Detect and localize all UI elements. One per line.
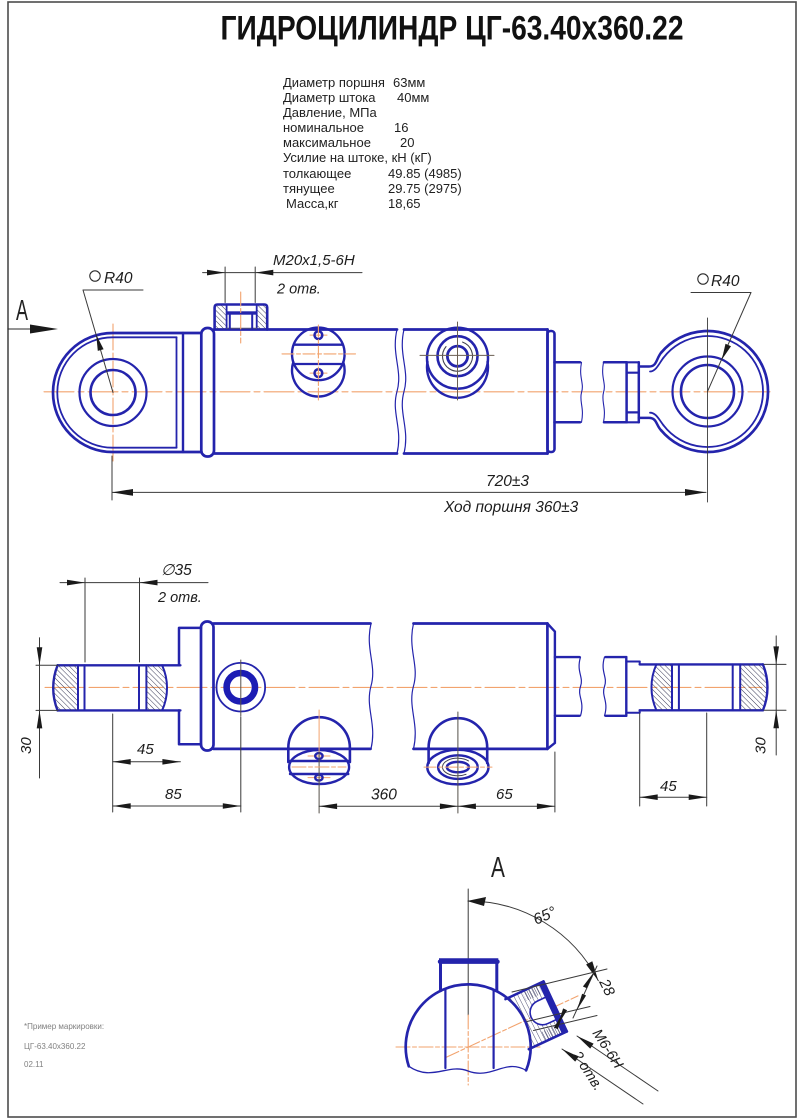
svg-text:R40: R40	[711, 273, 740, 290]
svg-text:2 отв.: 2 отв.	[276, 282, 321, 298]
svg-text:Диаметр штока: Диаметр штока	[283, 90, 376, 105]
svg-text:R40: R40	[104, 270, 133, 287]
svg-text:65°: 65°	[531, 904, 559, 929]
svg-text:16: 16	[394, 120, 408, 135]
svg-text:М6-6Н: М6-6Н	[589, 1026, 626, 1072]
svg-text:А: А	[16, 295, 29, 327]
svg-text:2 отв.: 2 отв.	[157, 590, 202, 606]
svg-text:максимальное: максимальное	[283, 135, 371, 150]
svg-text:ЦГ-63.40х360.22: ЦГ-63.40х360.22	[24, 1042, 86, 1051]
svg-text:30: 30	[18, 737, 35, 754]
svg-text:28: 28	[595, 975, 618, 999]
svg-text:29.75 (2975): 29.75 (2975)	[388, 181, 462, 196]
svg-text:∅35: ∅35	[161, 562, 192, 579]
svg-text:18,65: 18,65	[388, 196, 421, 211]
svg-text:тянущее: тянущее	[283, 181, 335, 196]
svg-text:02.11: 02.11	[24, 1060, 44, 1069]
svg-text:Усилие на штоке, кН (кГ): Усилие на штоке, кН (кГ)	[283, 150, 432, 165]
svg-text:номинальное: номинальное	[283, 120, 364, 135]
svg-text:360: 360	[371, 787, 397, 804]
svg-text:Ход поршня 360±3: Ход поршня 360±3	[443, 499, 579, 516]
svg-text:20: 20	[400, 135, 414, 150]
svg-text:85: 85	[165, 786, 182, 803]
svg-text:М20х1,5-6Н: М20х1,5-6Н	[273, 252, 355, 269]
svg-text:Диаметр поршня: Диаметр поршня	[283, 75, 385, 90]
svg-text:40мм: 40мм	[397, 90, 429, 105]
svg-text:45: 45	[660, 778, 677, 795]
svg-text:Масса,кг: Масса,кг	[286, 196, 339, 211]
svg-text:*Пример маркировки:: *Пример маркировки:	[24, 1022, 104, 1031]
svg-text:63мм: 63мм	[393, 75, 425, 90]
svg-text:720±3: 720±3	[486, 473, 529, 490]
svg-text:45: 45	[137, 741, 154, 758]
svg-text:ГИДРОЦИЛИНДР ЦГ-63.40х360.22: ГИДРОЦИЛИНДР ЦГ-63.40х360.22	[221, 10, 684, 48]
svg-text:толкающее: толкающее	[283, 166, 351, 181]
svg-text:65: 65	[496, 786, 513, 803]
svg-text:А: А	[491, 852, 505, 884]
svg-text:2 отв.: 2 отв.	[568, 1048, 606, 1094]
svg-text:30: 30	[753, 737, 770, 754]
svg-text:Давление, МПа: Давление, МПа	[283, 105, 378, 120]
svg-text:49.85 (4985): 49.85 (4985)	[388, 166, 462, 181]
